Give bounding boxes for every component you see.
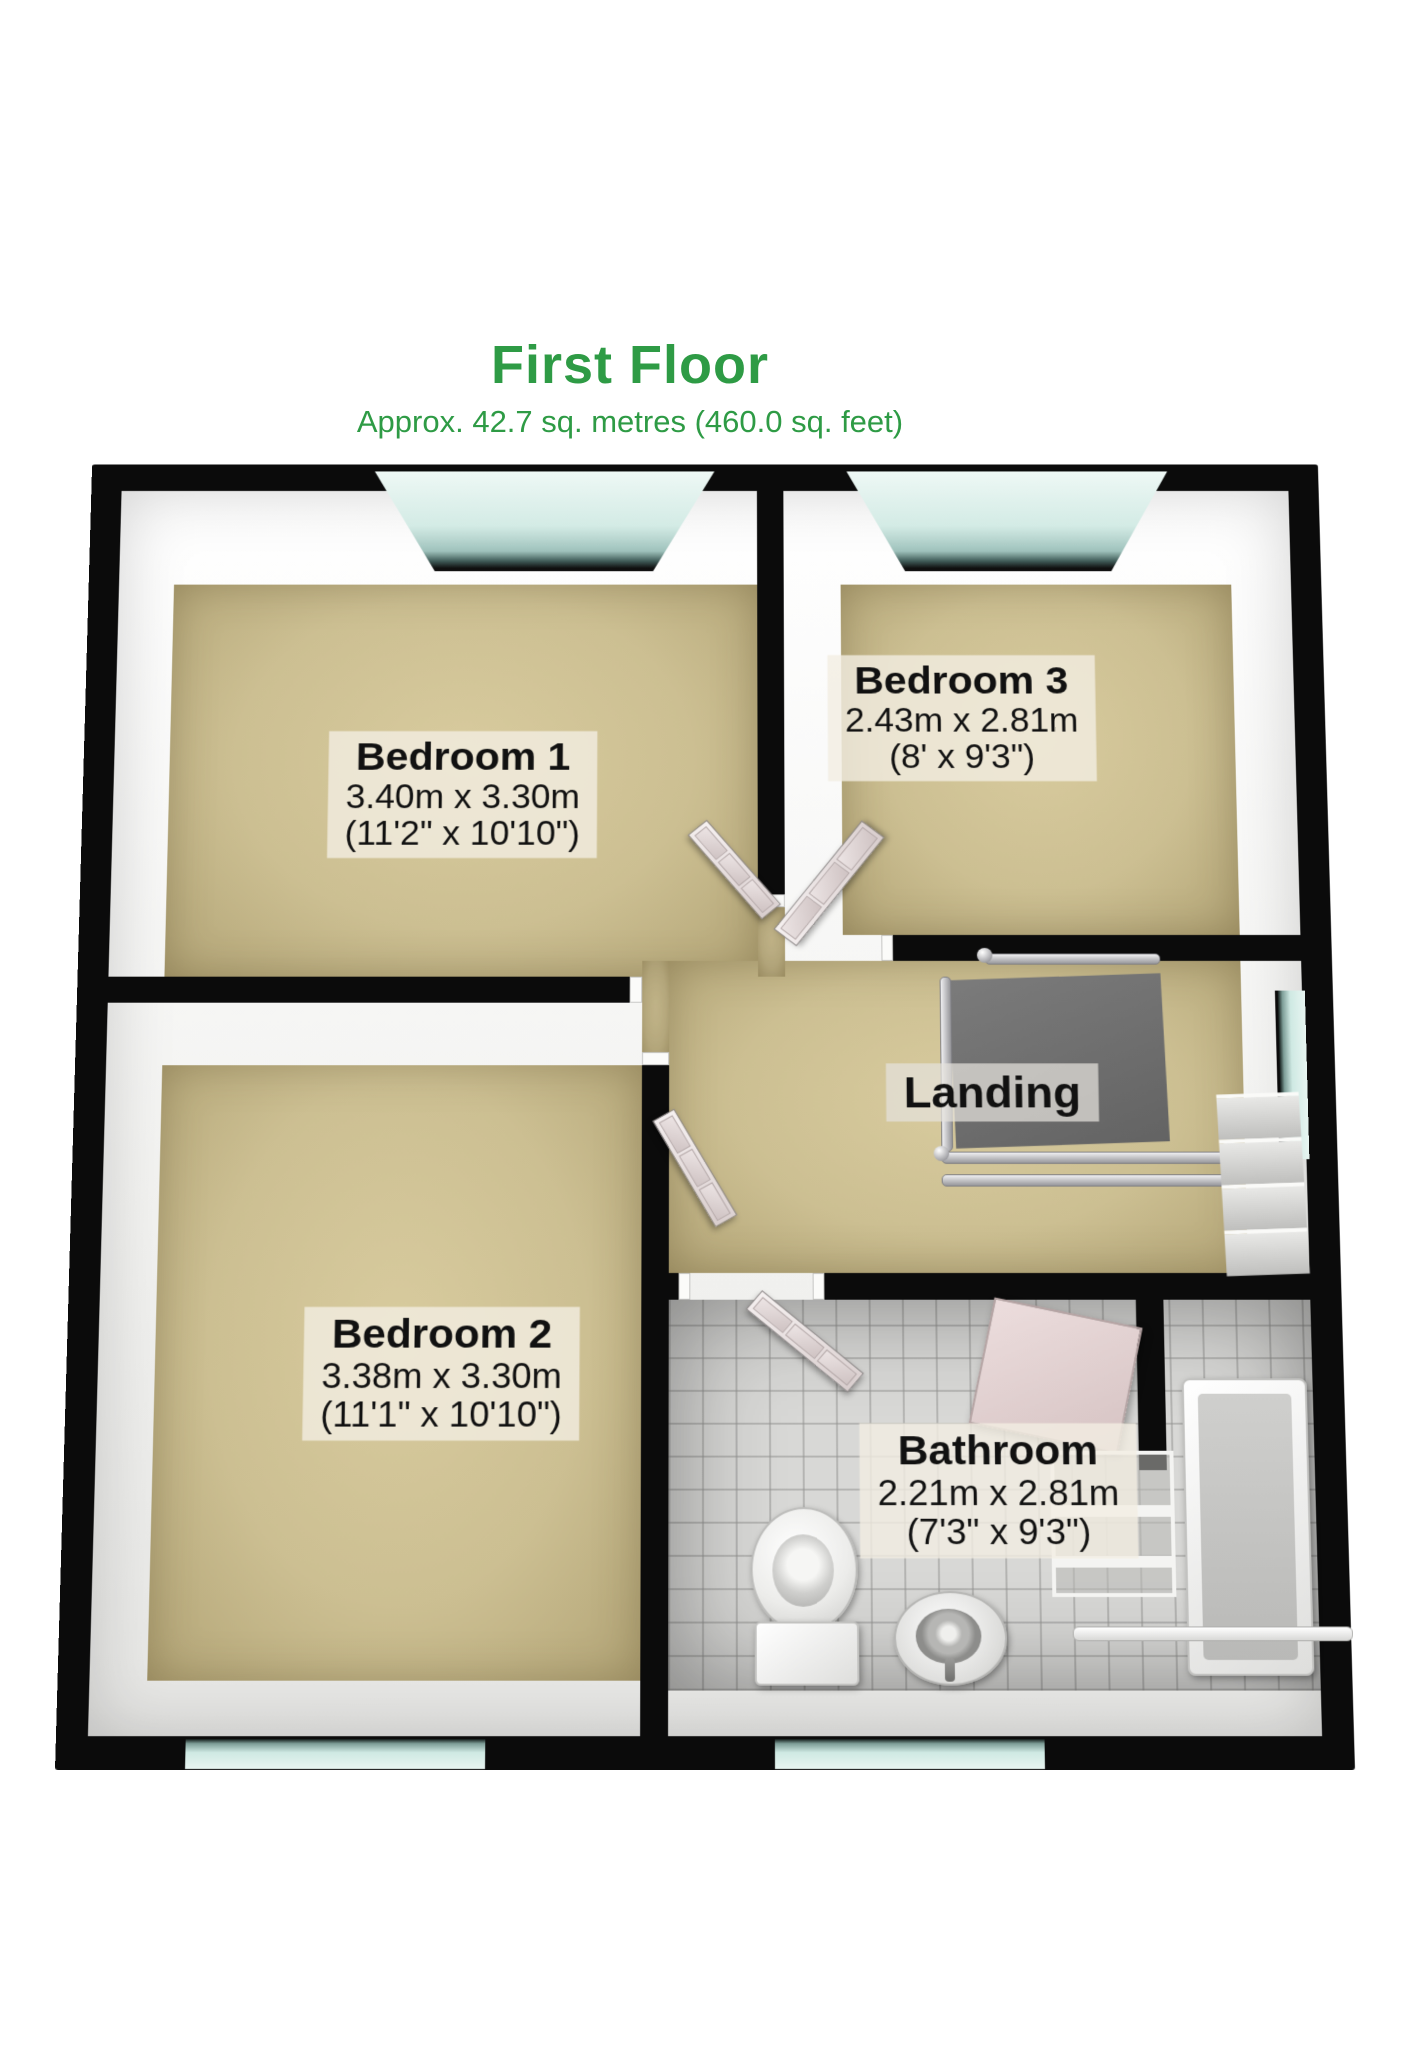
bedroom2-door-opening: [642, 961, 669, 1065]
bedroom2-imperial: (11'1" x 10'10"): [320, 1395, 562, 1434]
stair-handrail-lower: [942, 1174, 1232, 1186]
bedroom2-label: Bedroom 2 3.38m x 3.30m (11'1" x 10'10"): [302, 1307, 580, 1441]
staircase-steps: [1216, 1092, 1310, 1274]
bedroom1-metric: 3.40m x 3.30m: [345, 778, 580, 815]
toilet-bowl: [750, 1507, 858, 1632]
floor-plan: Bedroom 1 3.40m x 3.30m (11'2" x 10'10")…: [55, 464, 1355, 1770]
bathroom-window: [775, 1736, 1045, 1769]
sink-bowl: [916, 1609, 982, 1664]
bathroom-door-jamb-right: [813, 1273, 825, 1300]
stairwell-opening: [948, 973, 1170, 1148]
towel-rail: [1073, 1626, 1354, 1641]
landing-name: Landing: [903, 1069, 1081, 1116]
bedroom3-imperial: (8' x 9'3"): [845, 739, 1079, 776]
plan-header: First Floor Approx. 42.7 sq. metres (460…: [0, 334, 1260, 440]
bedroom3-label: Bedroom 3 2.43m x 2.81m (8' x 9'3"): [827, 655, 1096, 781]
bedroom2-metric: 3.38m x 3.30m: [321, 1356, 563, 1395]
bedroom3-name: Bedroom 3: [845, 661, 1079, 702]
page-subtitle: Approx. 42.7 sq. metres (460.0 sq. feet): [0, 404, 1260, 440]
stair-step: [1219, 1137, 1304, 1185]
stair-step: [1221, 1182, 1307, 1230]
wall-landing-bathroom-right: [813, 1273, 1311, 1300]
bedroom3-metric: 2.43m x 2.81m: [845, 702, 1079, 739]
bathroom-door-jamb-left: [679, 1273, 691, 1300]
wall-bedroom1-bedroom3: [757, 491, 785, 907]
bedroom3-door-jamb: [881, 935, 893, 961]
bedroom1-imperial: (11'2" x 10'10"): [344, 815, 580, 852]
bedroom1-name: Bedroom 1: [346, 737, 581, 778]
bathroom-label: Bathroom 2.21m x 2.81m (7'3" x 9'3"): [859, 1423, 1138, 1558]
sink-tap: [945, 1658, 955, 1682]
bedroom2-door-jamb-top: [630, 977, 643, 1003]
bedroom1-label: Bedroom 1 3.40m x 3.30m (11'2" x 10'10"): [327, 731, 598, 858]
toilet-seat: [772, 1534, 834, 1606]
bathroom-name: Bathroom: [877, 1429, 1119, 1473]
stair-rail-north: [985, 953, 1161, 964]
railing-post-north: [977, 948, 993, 963]
bathroom-metric: 2.21m x 2.81m: [877, 1473, 1119, 1513]
toilet-cistern: [755, 1622, 860, 1686]
railing-post-left: [934, 1146, 950, 1161]
bedroom2-window: [185, 1736, 485, 1769]
floorplan-page: First Floor Approx. 42.7 sq. metres (460…: [0, 0, 1410, 2048]
wall-bedroom1-bedroom2: [108, 977, 643, 1003]
bedroom2-name: Bedroom 2: [321, 1313, 562, 1357]
sink-basin: [894, 1591, 1008, 1686]
stair-step: [1224, 1228, 1310, 1276]
bathroom-stub-wall: [1136, 1300, 1167, 1470]
stair-handrail-upper: [941, 1152, 1230, 1164]
bathroom-imperial: (7'3" x 9'3"): [878, 1513, 1121, 1553]
stair-step: [1216, 1092, 1301, 1140]
landing-label: Landing: [886, 1063, 1099, 1121]
wall-bedroom2-bathroom: [640, 1065, 669, 1736]
page-title: First Floor: [0, 334, 1260, 396]
bedroom2-door-jamb-bottom: [642, 1052, 669, 1065]
bathtub-interior: [1198, 1394, 1298, 1660]
